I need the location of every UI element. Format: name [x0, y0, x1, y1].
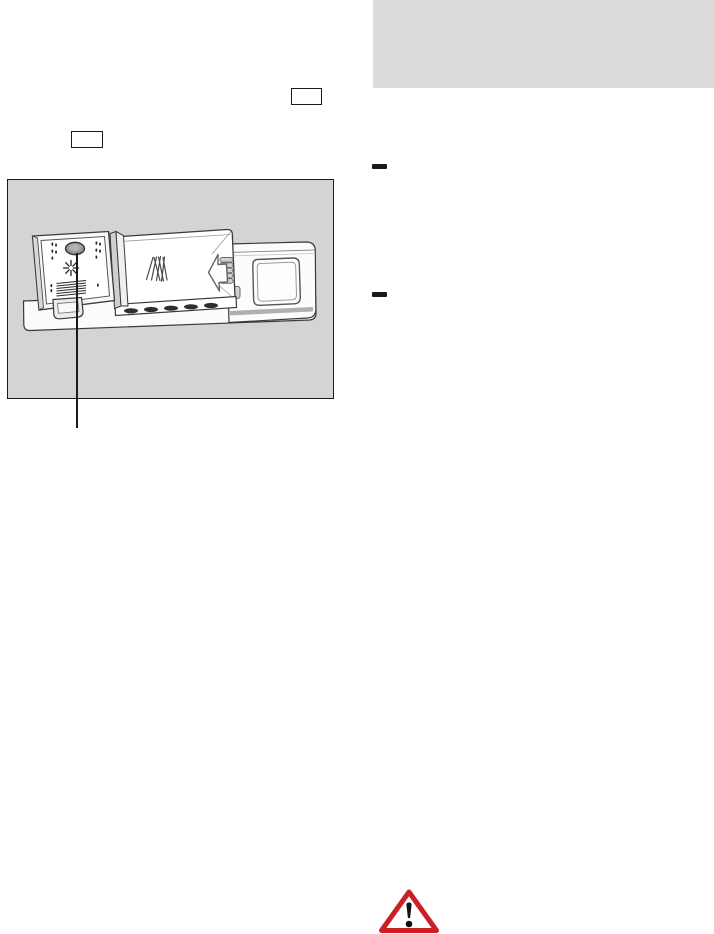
header-panel	[373, 0, 714, 88]
warning-triangle-icon	[377, 886, 441, 934]
key-placeholder-box-2	[71, 131, 103, 148]
latch-handle	[53, 298, 83, 319]
dispenser-illustration	[8, 180, 333, 398]
dispenser-figure	[7, 179, 334, 399]
tablet-compartment	[253, 258, 301, 305]
middle-cover	[115, 229, 237, 315]
callout-line	[76, 253, 78, 428]
right-tray	[227, 242, 316, 323]
manual-page	[0, 0, 714, 934]
list-dash-marker-2	[372, 292, 387, 297]
list-dash-marker-1	[372, 164, 387, 169]
warning-icon-wrap	[377, 886, 441, 934]
key-placeholder-box-1	[291, 88, 322, 105]
